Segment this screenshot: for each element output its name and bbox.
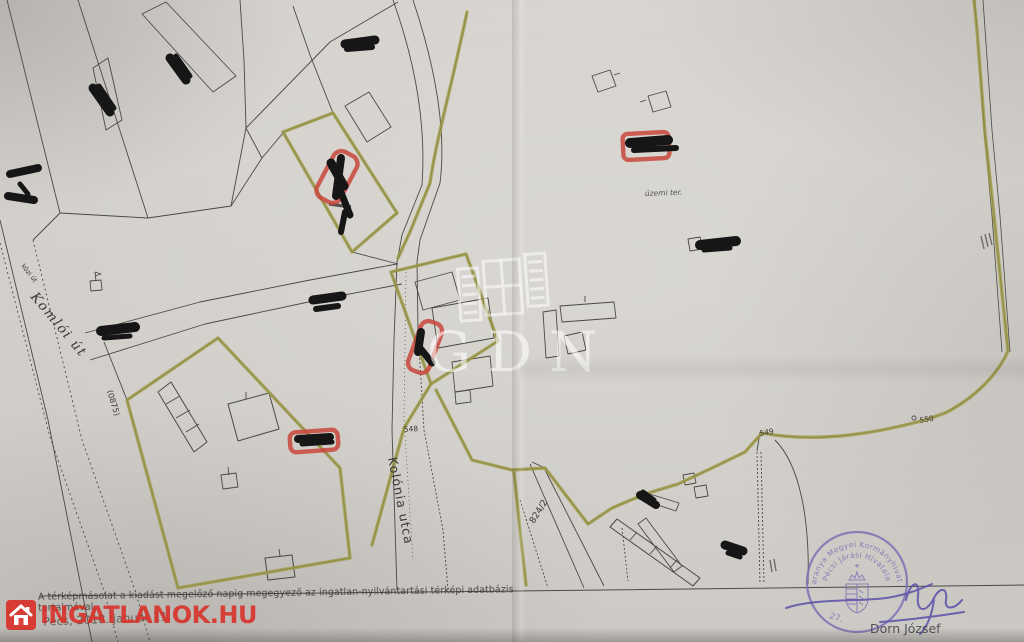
official-stamp: Baranya Megyei Kormányhivatal Pécsi Járá… [807, 532, 907, 632]
map-linework-layer: közi út Komlói út (0875) Kolónia utca 54… [0, 0, 1024, 642]
street-label-small: közi út [19, 262, 39, 284]
stamp-number: 27. [828, 611, 844, 625]
redaction-marks [8, 40, 743, 557]
scanned-cadastral-map-photo: közi út Komlói út (0875) Kolónia utca 54… [0, 0, 1024, 642]
coat-of-arms-icon [846, 564, 868, 613]
map-labels: közi út Komlói út (0875) Kolónia utca 54… [19, 188, 934, 546]
point-label-548: 548 [404, 424, 419, 434]
highlighted-boundaries [127, 0, 1008, 588]
street-label-kolonia: Kolónia utca [385, 456, 417, 546]
road-number-label: (0875) [105, 389, 121, 417]
area-note-label: üzemi ter. [645, 188, 683, 198]
illegible-edge-label [770, 233, 992, 572]
street-label-komloi: Komlói út [26, 289, 90, 361]
parcel-label-824: 824/2 [528, 498, 550, 525]
signer-name: Dorn József [870, 621, 941, 636]
point-label-550: 550 [919, 414, 935, 425]
